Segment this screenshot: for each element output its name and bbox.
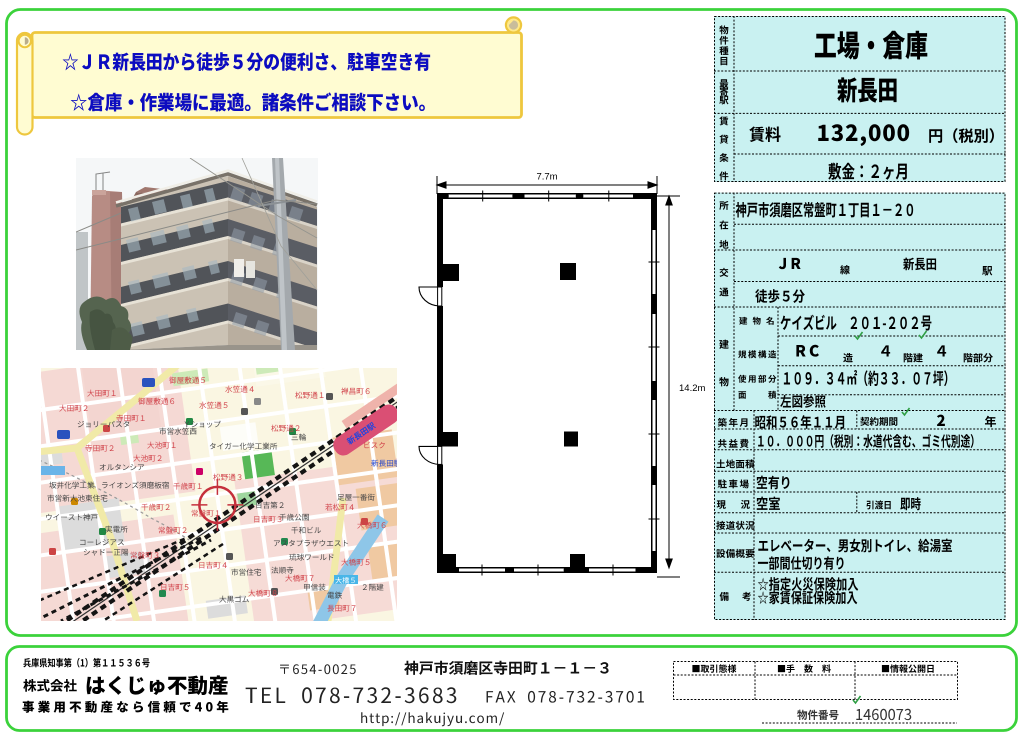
svg-text:14.2m: 14.2m: [679, 383, 705, 394]
svg-text:7.7m: 7.7m: [536, 172, 557, 183]
